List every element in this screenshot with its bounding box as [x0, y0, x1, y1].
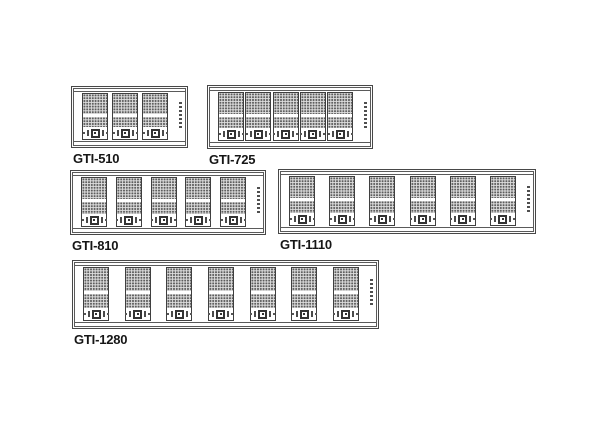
vent-tick: [364, 110, 367, 112]
vent-tick: [179, 114, 182, 116]
module-vent-grid-top: [186, 178, 210, 199]
connector-bar-left: [117, 130, 119, 136]
module-connector-row: [143, 127, 167, 139]
connector-bar-right: [240, 217, 242, 223]
module-connector-row: [152, 214, 176, 226]
panel-label: GTI-1280: [74, 332, 379, 347]
module-slot: [250, 267, 276, 321]
connector-bar-right: [347, 131, 349, 137]
chassis-inner-frame: [73, 88, 186, 146]
jack-socket: [258, 310, 267, 319]
jack-pin: [422, 218, 424, 220]
jack-socket: [175, 310, 184, 319]
module-connector-row: [451, 213, 475, 225]
connector-bar-left: [374, 216, 376, 222]
vent-tick: [257, 187, 260, 189]
module-slot: [151, 177, 177, 227]
connector-dot-left: [125, 313, 127, 315]
vent-tick: [364, 114, 367, 116]
module-vent-grid-top: [292, 268, 316, 291]
vent-tick: [179, 126, 182, 128]
module-vent-grid-top: [117, 178, 141, 199]
connector-bar-left: [129, 311, 131, 317]
connector-dot-right: [209, 219, 211, 221]
vent-tick: [370, 295, 373, 297]
jack-socket: [378, 215, 387, 224]
jack-socket: [91, 129, 100, 138]
jack-socket: [133, 310, 142, 319]
vent-tick: [527, 202, 530, 204]
module-connector-row: [411, 213, 435, 225]
module-vent-grid-top: [84, 268, 108, 291]
connector-bar-right: [186, 311, 188, 317]
connector-bar-right: [144, 311, 146, 317]
connector-bar-right: [509, 216, 511, 222]
module-slot: [450, 176, 476, 226]
vent-tick: [527, 198, 530, 200]
connector-dot-left: [143, 132, 145, 134]
jack-pin: [95, 313, 97, 315]
connector-dot-right: [107, 313, 109, 315]
module-vent-grid-mid: [301, 117, 325, 128]
connector-bar-left: [225, 217, 227, 223]
module-vent-grid-top: [290, 177, 314, 198]
vent-tick: [370, 299, 373, 301]
module-vent-grid-top: [451, 177, 475, 198]
connector-dot-right: [166, 132, 168, 134]
jack-socket: [229, 216, 238, 225]
module-vent-grid-top: [113, 94, 137, 114]
module-vent-grid-mid: [84, 294, 108, 308]
panel-label: GTI-725: [209, 152, 373, 167]
vent-tick: [179, 118, 182, 120]
connector-dot-right: [148, 313, 150, 315]
panel-label: GTI-1110: [280, 237, 536, 252]
jack-pin: [502, 218, 504, 220]
connector-dot-left: [82, 219, 84, 221]
connector-bar-right: [135, 217, 137, 223]
jack-pin: [137, 313, 139, 315]
module-connector-row: [251, 308, 275, 320]
module-slot: [245, 92, 271, 141]
vent-tick-strip: [179, 102, 182, 128]
vent-tick: [179, 102, 182, 104]
jack-socket: [300, 310, 309, 319]
figure-canvas: GTI-510 GTI-725 GTI-810: [0, 0, 600, 442]
jack-pin: [93, 219, 95, 221]
connector-bar-left: [86, 217, 88, 223]
connector-dot-right: [433, 218, 435, 220]
module-connector-row: [84, 308, 108, 320]
jack-socket: [254, 130, 263, 139]
jack-pin: [230, 133, 232, 135]
chassis-bottom-bar: [73, 228, 263, 232]
connector-bar-right: [103, 311, 105, 317]
jack-pin: [128, 219, 130, 221]
connector-dot-left: [186, 219, 188, 221]
jack-socket: [194, 216, 203, 225]
connector-dot-left: [292, 313, 294, 315]
rack-chassis-drawing: [72, 260, 379, 329]
vent-tick: [179, 122, 182, 124]
connector-bar-right: [102, 130, 104, 136]
module-vent-grid-top: [126, 268, 150, 291]
connector-bar-right: [205, 217, 207, 223]
connector-dot-right: [353, 218, 355, 220]
connector-bar-right: [132, 130, 134, 136]
connector-bar-left: [147, 130, 149, 136]
connector-dot-left: [370, 218, 372, 220]
module-slot: [185, 177, 211, 227]
connector-bar-left: [334, 216, 336, 222]
connector-bar-right: [101, 217, 103, 223]
jack-socket: [227, 130, 236, 139]
connector-dot-right: [323, 133, 325, 135]
rack-chassis-drawing: [278, 169, 536, 234]
jack-socket: [92, 310, 101, 319]
vent-tick: [370, 279, 373, 281]
connector-dot-left: [290, 218, 292, 220]
module-vent-grid-mid: [334, 294, 358, 308]
connector-dot-right: [106, 132, 108, 134]
connector-dot-left: [219, 133, 221, 135]
connector-bar-right: [311, 311, 313, 317]
jack-socket: [159, 216, 168, 225]
jack-pin: [285, 133, 287, 135]
module-bay: [73, 176, 263, 228]
module-connector-row: [126, 308, 150, 320]
module-slot: [220, 177, 246, 227]
module-slot: [490, 176, 516, 226]
module-vent-grid-mid: [83, 117, 107, 127]
vent-tick: [364, 106, 367, 108]
module-connector-row: [301, 128, 325, 140]
vent-tick: [179, 110, 182, 112]
module-vent-grid-mid: [167, 294, 191, 308]
connector-bar-right: [269, 311, 271, 317]
module-slot: [166, 267, 192, 321]
module-vent-grid-top: [219, 93, 243, 114]
jack-pin: [178, 313, 180, 315]
panel-label: GTI-510: [73, 151, 188, 166]
module-vent-grid-top: [143, 94, 167, 114]
module-vent-grid-mid: [126, 294, 150, 308]
jack-pin: [339, 133, 341, 135]
connector-bar-right: [238, 131, 240, 137]
vent-tick-strip: [370, 279, 373, 305]
module-connector-row: [334, 308, 358, 320]
module-vent-grid-top: [301, 93, 325, 114]
connector-dot-right: [296, 133, 298, 135]
vent-tick: [370, 287, 373, 289]
jack-socket: [121, 129, 130, 138]
module-vent-grid-top: [370, 177, 394, 198]
module-connector-row: [290, 213, 314, 225]
module-slot: [81, 177, 107, 227]
module-vent-grid-top: [274, 93, 298, 114]
module-vent-grid-mid: [152, 202, 176, 214]
vent-tick: [370, 291, 373, 293]
vent-tick-strip: [527, 186, 530, 212]
connector-bar-right: [352, 311, 354, 317]
connector-dot-left: [328, 133, 330, 135]
module-connector-row: [330, 213, 354, 225]
connector-dot-left: [167, 313, 169, 315]
module-vent-grid-mid: [219, 117, 243, 128]
module-connector-row: [246, 128, 270, 140]
connector-dot-left: [490, 218, 492, 220]
connector-dot-right: [356, 313, 358, 315]
module-vent-grid-top: [82, 178, 106, 199]
connector-bar-right: [309, 216, 311, 222]
jack-pin: [381, 218, 383, 220]
connector-bar-right: [389, 216, 391, 222]
connector-dot-right: [393, 218, 395, 220]
module-connector-row: [82, 214, 106, 226]
connector-bar-right: [265, 131, 267, 137]
jack-socket: [124, 216, 133, 225]
vent-tick: [257, 203, 260, 205]
module-slot: [208, 267, 234, 321]
module-connector-row: [117, 214, 141, 226]
connector-dot-right: [513, 218, 515, 220]
module-vent-grid-top: [209, 268, 233, 291]
connector-bar-right: [292, 131, 294, 137]
module-vent-grid-top: [328, 93, 352, 114]
module-vent-grid-top: [251, 268, 275, 291]
connector-bar-left: [454, 216, 456, 222]
jack-pin: [303, 313, 305, 315]
connector-dot-left: [83, 132, 85, 134]
connector-bar-right: [319, 131, 321, 137]
module-connector-row: [274, 128, 298, 140]
connector-bar-right: [469, 216, 471, 222]
connector-dot-left: [246, 133, 248, 135]
module-connector-row: [221, 214, 245, 226]
connector-bar-right: [429, 216, 431, 222]
connector-dot-left: [333, 313, 335, 315]
connector-bar-left: [212, 311, 214, 317]
module-slot: [142, 93, 168, 140]
module-bay: [75, 266, 376, 322]
connector-bar-left: [190, 217, 192, 223]
connector-dot-left: [113, 132, 115, 134]
panel-label: GTI-810: [72, 238, 266, 253]
connector-dot-left: [450, 218, 452, 220]
module-connector-row: [370, 213, 394, 225]
jack-socket: [418, 215, 427, 224]
jack-socket: [338, 215, 347, 224]
jack-socket: [498, 215, 507, 224]
chassis-bottom-bar: [74, 141, 185, 145]
connector-dot-right: [269, 133, 271, 135]
module-vent-grid-mid: [370, 201, 394, 213]
jack-socket: [341, 310, 350, 319]
connector-dot-left: [250, 313, 252, 315]
module-slot: [329, 176, 355, 226]
module-slot: [273, 92, 299, 141]
vent-tick: [527, 206, 530, 208]
vent-tick: [179, 106, 182, 108]
jack-pin: [94, 132, 96, 134]
module-slot: [333, 267, 359, 321]
module-slot: [289, 176, 315, 226]
panel-group-gti-810: GTI-810: [70, 170, 266, 253]
panel-group-gti-510: GTI-510: [71, 86, 188, 166]
jack-pin: [462, 218, 464, 220]
module-vent-grid-top: [221, 178, 245, 199]
jack-pin: [257, 133, 259, 135]
module-vent-grid-top: [411, 177, 435, 198]
rack-chassis-drawing: [71, 86, 188, 148]
jack-socket: [151, 129, 160, 138]
connector-bar-right: [227, 311, 229, 317]
connector-dot-left: [221, 219, 223, 221]
chassis-inner-frame: [209, 87, 371, 147]
module-slot: [410, 176, 436, 226]
module-connector-row: [292, 308, 316, 320]
module-vent-grid-top: [167, 268, 191, 291]
jack-socket: [336, 130, 345, 139]
connector-bar-left: [171, 311, 173, 317]
vent-tick: [370, 283, 373, 285]
connector-dot-left: [330, 218, 332, 220]
module-slot: [82, 93, 108, 140]
jack-pin: [232, 219, 234, 221]
chassis-bottom-bar: [210, 142, 370, 146]
module-bay: [74, 92, 185, 141]
jack-socket: [90, 216, 99, 225]
vent-tick: [364, 126, 367, 128]
connector-bar-right: [170, 217, 172, 223]
module-vent-grid-mid: [451, 201, 475, 213]
module-connector-row: [219, 128, 243, 140]
connector-bar-left: [223, 131, 225, 137]
connector-dot-right: [273, 313, 275, 315]
vent-tick: [257, 195, 260, 197]
vent-tick: [527, 194, 530, 196]
connector-dot-right: [244, 219, 246, 221]
module-vent-grid-top: [330, 177, 354, 198]
jack-pin: [262, 313, 264, 315]
module-vent-grid-mid: [246, 117, 270, 128]
module-vent-grid-mid: [113, 117, 137, 127]
vent-tick: [527, 186, 530, 188]
module-slot: [300, 92, 326, 141]
module-vent-grid-top: [246, 93, 270, 114]
vent-tick-strip: [364, 102, 367, 128]
jack-pin: [345, 313, 347, 315]
module-vent-grid-mid: [411, 201, 435, 213]
module-vent-grid-top: [152, 178, 176, 199]
connector-bar-left: [277, 131, 279, 137]
connector-dot-left: [410, 218, 412, 220]
connector-dot-left: [151, 219, 153, 221]
connector-bar-left: [88, 311, 90, 317]
module-vent-grid-mid: [292, 294, 316, 308]
module-slot: [116, 177, 142, 227]
connector-dot-right: [105, 219, 107, 221]
jack-pin: [124, 132, 126, 134]
module-vent-grid-mid: [328, 117, 352, 128]
jack-pin: [154, 132, 156, 134]
connector-bar-left: [294, 216, 296, 222]
module-connector-row: [209, 308, 233, 320]
jack-pin: [220, 313, 222, 315]
module-connector-row: [113, 127, 137, 139]
module-slot: [112, 93, 138, 140]
jack-pin: [312, 133, 314, 135]
jack-pin: [341, 218, 343, 220]
module-vent-grid-mid: [290, 201, 314, 213]
module-slot: [291, 267, 317, 321]
connector-dot-right: [315, 313, 317, 315]
vent-tick: [257, 207, 260, 209]
panel-group-gti-1280: GTI-1280: [72, 260, 379, 347]
connector-bar-right: [349, 216, 351, 222]
connector-dot-right: [473, 218, 475, 220]
module-vent-grid-mid: [274, 117, 298, 128]
module-bay: [210, 91, 370, 142]
chassis-bottom-bar: [281, 227, 533, 231]
connector-dot-left: [273, 133, 275, 135]
connector-bar-left: [337, 311, 339, 317]
module-vent-grid-mid: [186, 202, 210, 214]
connector-dot-left: [116, 219, 118, 221]
module-slot: [369, 176, 395, 226]
vent-tick: [364, 102, 367, 104]
jack-pin: [163, 219, 165, 221]
module-slot: [218, 92, 244, 141]
jack-socket: [281, 130, 290, 139]
connector-dot-right: [231, 313, 233, 315]
connector-bar-left: [87, 130, 89, 136]
module-vent-grid-top: [83, 94, 107, 114]
jack-pin: [301, 218, 303, 220]
module-vent-grid-mid: [330, 201, 354, 213]
module-vent-grid-mid: [82, 202, 106, 214]
module-vent-grid-mid: [209, 294, 233, 308]
module-connector-row: [186, 214, 210, 226]
vent-tick-strip: [257, 187, 260, 213]
connector-dot-right: [351, 133, 353, 135]
jack-pin: [197, 219, 199, 221]
vent-tick: [257, 199, 260, 201]
chassis-inner-frame: [74, 262, 377, 327]
connector-dot-left: [208, 313, 210, 315]
connector-dot-right: [139, 219, 141, 221]
connector-dot-left: [84, 313, 86, 315]
module-vent-grid-mid: [251, 294, 275, 308]
jack-socket: [216, 310, 225, 319]
rack-chassis-drawing: [70, 170, 266, 235]
chassis-inner-frame: [280, 171, 534, 232]
connector-dot-right: [190, 313, 192, 315]
connector-bar-left: [304, 131, 306, 137]
vent-tick: [364, 118, 367, 120]
connector-dot-right: [136, 132, 138, 134]
module-vent-grid-mid: [491, 201, 515, 213]
chassis-bottom-bar: [75, 322, 376, 326]
vent-tick: [257, 191, 260, 193]
module-connector-row: [328, 128, 352, 140]
connector-dot-right: [313, 218, 315, 220]
vent-tick: [527, 210, 530, 212]
module-connector-row: [83, 127, 107, 139]
connector-bar-left: [414, 216, 416, 222]
connector-dot-right: [174, 219, 176, 221]
rack-chassis-drawing: [207, 85, 373, 149]
